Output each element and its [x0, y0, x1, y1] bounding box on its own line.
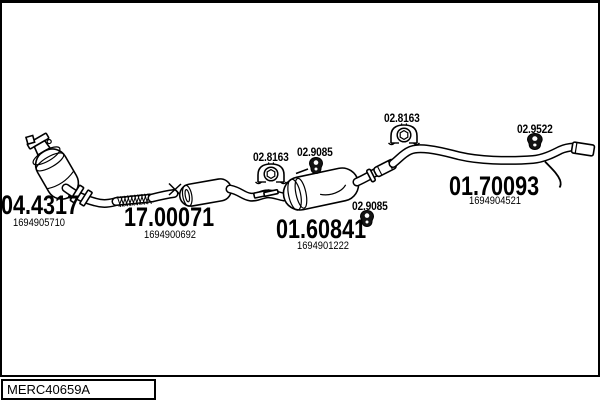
- part-ref-front-pipe: 1694905710: [13, 218, 65, 229]
- clamp-icon: [256, 162, 287, 183]
- clamp-icon: [389, 123, 420, 144]
- tailpipe-tip: [571, 142, 594, 156]
- fitting-number-clamp-right: 02.8163: [384, 112, 420, 124]
- muffler-hanger-tab: [296, 169, 308, 174]
- drawing-code-plate: MERC40659A: [1, 379, 156, 400]
- fitting-number-hanger-bottom: 02.9085: [352, 200, 388, 212]
- diagram-page: 04.4317 1694905710 17.00071 1694900692 0…: [0, 0, 600, 400]
- intermediate-pipe: [152, 184, 181, 199]
- center-muffler-body: [280, 165, 361, 213]
- connecting-pipe: [230, 189, 284, 198]
- part-ref-rear-pipe: 1694904521: [469, 196, 521, 207]
- part-ref-center-muffler: 1694901222: [297, 241, 349, 252]
- part-number-center-muffler: 01.60841: [276, 216, 366, 243]
- fitting-number-clamp-left: 02.8163: [253, 151, 289, 163]
- part-number-center-pipe: 17.00071: [124, 204, 214, 231]
- tailpipe-end-hook: [545, 162, 561, 188]
- fitting-number-hanger-rear: 02.9522: [517, 123, 553, 135]
- rubber-hanger-icon: [310, 158, 323, 174]
- part-number-front-pipe: 04.4317: [1, 192, 79, 219]
- fitting-number-hanger-top: 02.9085: [297, 146, 333, 158]
- part-ref-center-pipe: 1694900692: [144, 230, 196, 241]
